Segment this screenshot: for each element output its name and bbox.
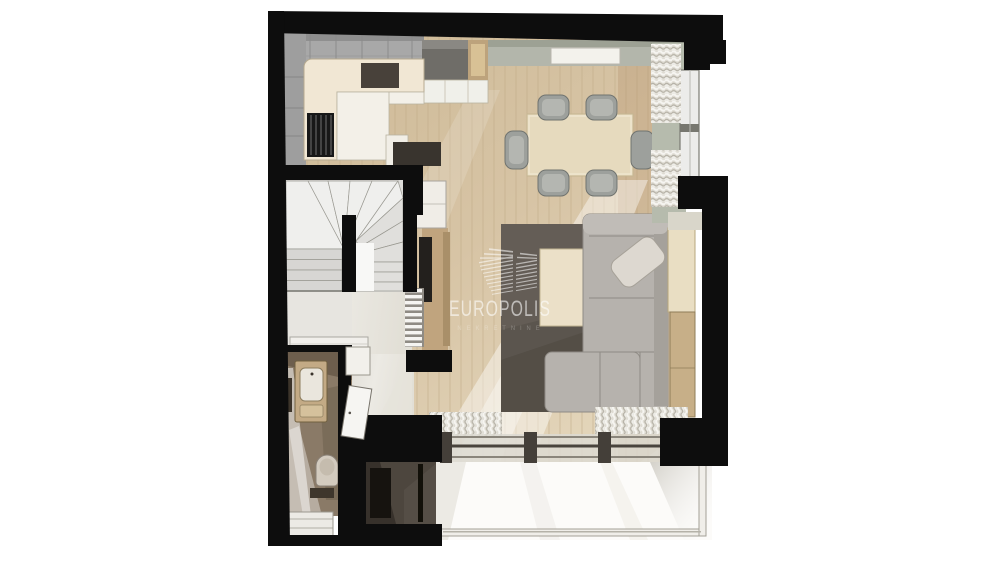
svg-text:EUROPOLIS: EUROPOLIS — [449, 298, 551, 322]
svg-text:NEKRETNINE: NEKRETNINE — [457, 325, 544, 332]
